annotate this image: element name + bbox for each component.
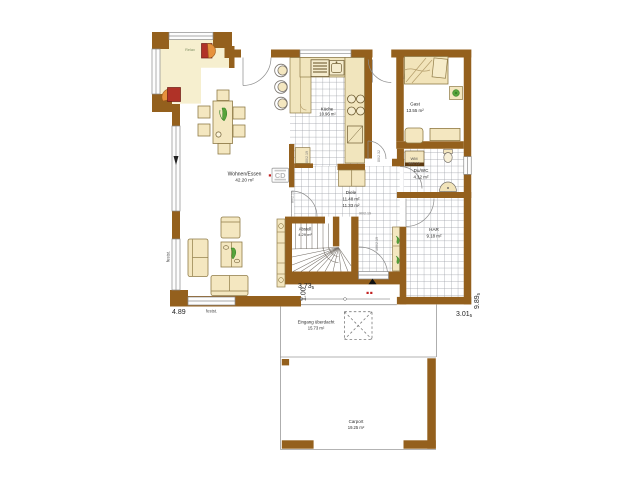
svg-text:4.29 m²: 4.29 m²: [298, 232, 312, 237]
svg-text:Eingang überdacht: Eingang überdacht: [298, 320, 336, 325]
svg-text:90/2.19: 90/2.19: [408, 162, 419, 166]
svg-text:9.895: 9.895: [474, 292, 481, 309]
svg-text:13.55 m²: 13.55 m²: [406, 108, 424, 113]
svg-text:CD: CD: [275, 171, 286, 180]
svg-text:90/2.19: 90/2.19: [359, 212, 371, 216]
svg-text:festst.: festst.: [206, 309, 217, 314]
svg-text:3.015: 3.015: [456, 311, 473, 318]
svg-text:11.48 m²: 11.48 m²: [342, 197, 360, 202]
svg-text:HAR: HAR: [429, 227, 439, 232]
svg-text:Gast: Gast: [410, 102, 420, 107]
svg-text:Du/WC: Du/WC: [414, 168, 429, 173]
svg-text:Diele: Diele: [346, 190, 357, 195]
svg-text:11.33 m²: 11.33 m²: [342, 203, 360, 208]
svg-text:Carport: Carport: [349, 419, 364, 424]
svg-text:80/2.19: 80/2.19: [291, 191, 295, 203]
svg-text:80/2.19: 80/2.19: [305, 151, 309, 163]
svg-text:4.12 m²: 4.12 m²: [414, 175, 429, 180]
svg-text:festst.: festst.: [166, 251, 171, 262]
svg-text:1.00: 1.00: [301, 287, 308, 301]
svg-text:Relax: Relax: [185, 48, 195, 52]
svg-text:42.20 m²: 42.20 m²: [235, 178, 254, 183]
svg-text:80/2.32: 80/2.32: [377, 150, 381, 162]
svg-text:19.25 m²: 19.25 m²: [348, 425, 365, 430]
svg-text:100/2.19: 100/2.19: [375, 237, 379, 251]
svg-text:WM: WM: [410, 156, 417, 161]
svg-text:Abstell: Abstell: [299, 227, 312, 232]
svg-text:15.73 m²: 15.73 m²: [308, 326, 325, 331]
svg-text:4.89: 4.89: [172, 309, 186, 316]
svg-text:10.96 m²: 10.96 m²: [319, 112, 336, 117]
svg-text:9.18 m²: 9.18 m²: [427, 234, 442, 239]
